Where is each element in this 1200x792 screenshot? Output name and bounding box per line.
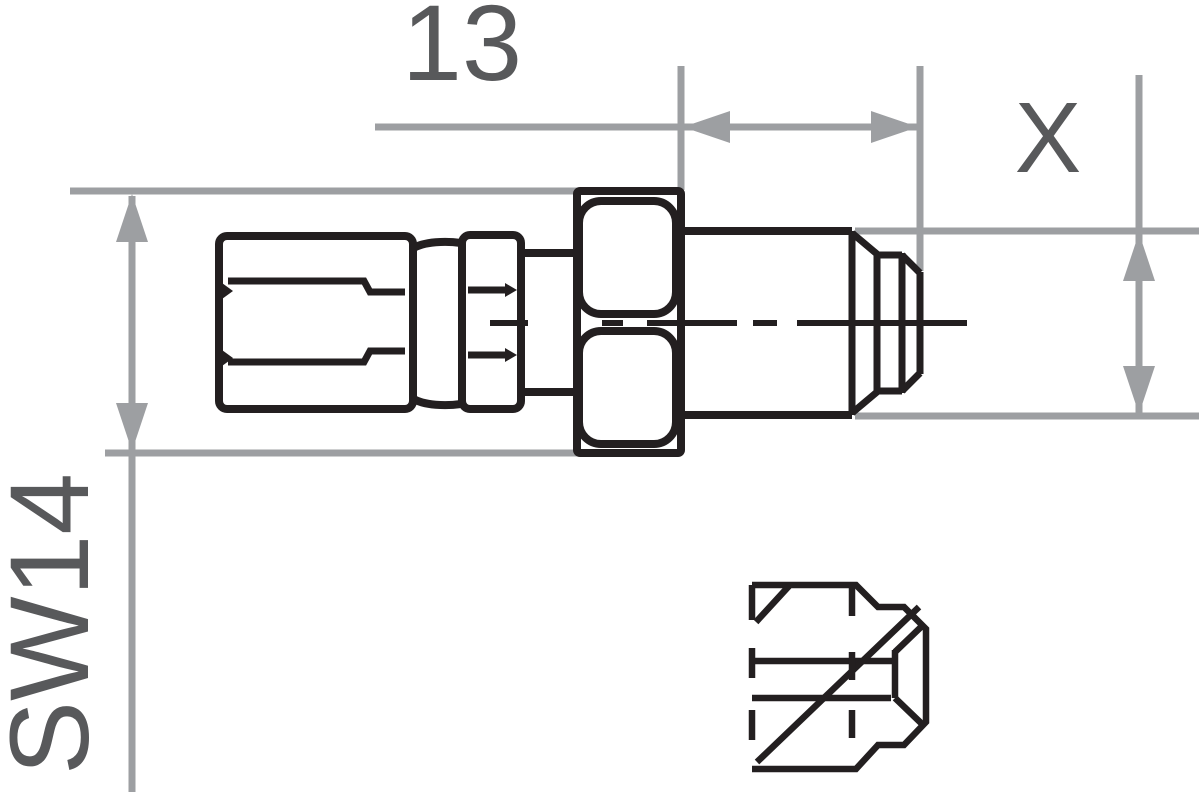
collar-notch-top <box>505 283 517 297</box>
hex-facet-lower <box>579 331 676 444</box>
neck-bottom <box>412 398 461 405</box>
arrow-up-icon <box>116 194 148 242</box>
technical-drawing: SW14 13 X <box>0 0 1200 792</box>
dimension-13-label: 13 <box>402 0 522 103</box>
arrow-right-icon <box>871 111 918 143</box>
arrow-down-icon <box>116 403 148 451</box>
socket-bore-top <box>228 281 405 292</box>
main-view <box>219 191 967 453</box>
neck-top <box>412 242 461 249</box>
collar-notch-bottom <box>505 348 517 362</box>
socket-notch-top <box>222 283 233 299</box>
detail-corner-diagonal <box>756 586 789 622</box>
detail-cone-upper <box>895 627 921 652</box>
hex-facet-upper <box>579 201 676 314</box>
detail-cone-lower <box>895 698 921 723</box>
chamfer-bottom <box>852 392 877 413</box>
arrow-up-icon <box>1123 233 1155 281</box>
arrow-left-icon <box>683 111 730 143</box>
chamfer-top <box>852 233 877 254</box>
drawing-canvas: SW14 13 X <box>0 0 1200 792</box>
detail-view <box>752 585 926 769</box>
socket-outline <box>219 236 413 409</box>
arrow-down-icon <box>1123 366 1155 414</box>
dimension-x-label: X <box>1015 82 1082 194</box>
dimension-sw14-label: SW14 <box>0 473 112 775</box>
socket-bore-bottom <box>228 351 405 362</box>
